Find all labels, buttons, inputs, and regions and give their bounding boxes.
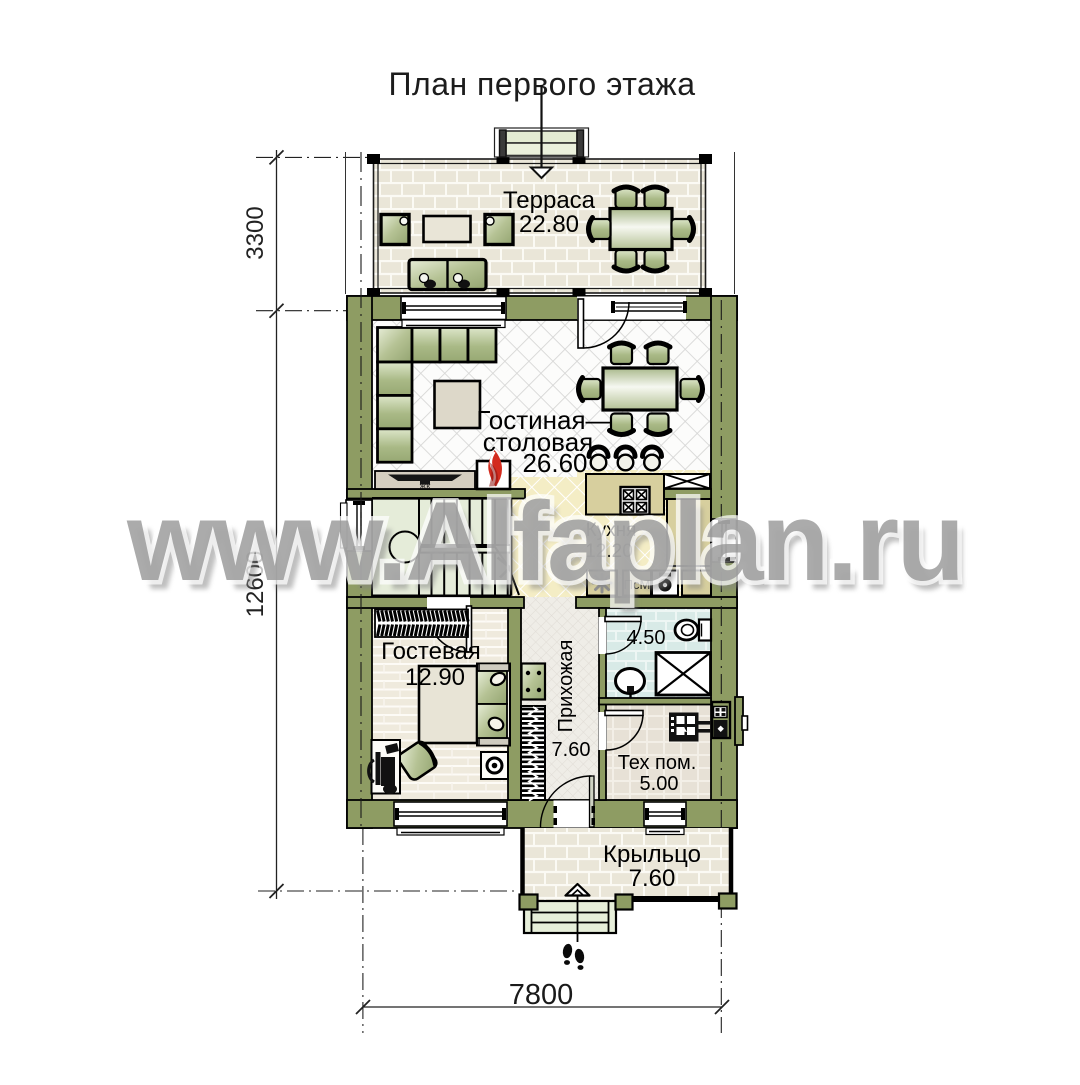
svg-text:22.80: 22.80 — [519, 211, 579, 238]
svg-text:www.Alfaplan.ru: www.Alfaplan.ru — [126, 479, 965, 604]
svg-text:26.60: 26.60 — [522, 448, 587, 478]
svg-text:Гостевая: Гостевая — [381, 638, 481, 665]
svg-text:4.50: 4.50 — [627, 627, 666, 649]
svg-text:Тех пом.: Тех пом. — [618, 752, 697, 774]
svg-text:Прихожая: Прихожая — [555, 640, 577, 733]
svg-text:7.60: 7.60 — [629, 865, 676, 892]
svg-text:Терраса: Терраса — [503, 187, 596, 214]
svg-text:3300: 3300 — [242, 206, 269, 259]
svg-text:7800: 7800 — [509, 979, 574, 1011]
svg-text:12.90: 12.90 — [405, 664, 465, 691]
svg-text:Крыльцо: Крыльцо — [603, 841, 701, 868]
svg-text:5.00: 5.00 — [640, 773, 679, 795]
svg-text:7.60: 7.60 — [552, 739, 591, 761]
